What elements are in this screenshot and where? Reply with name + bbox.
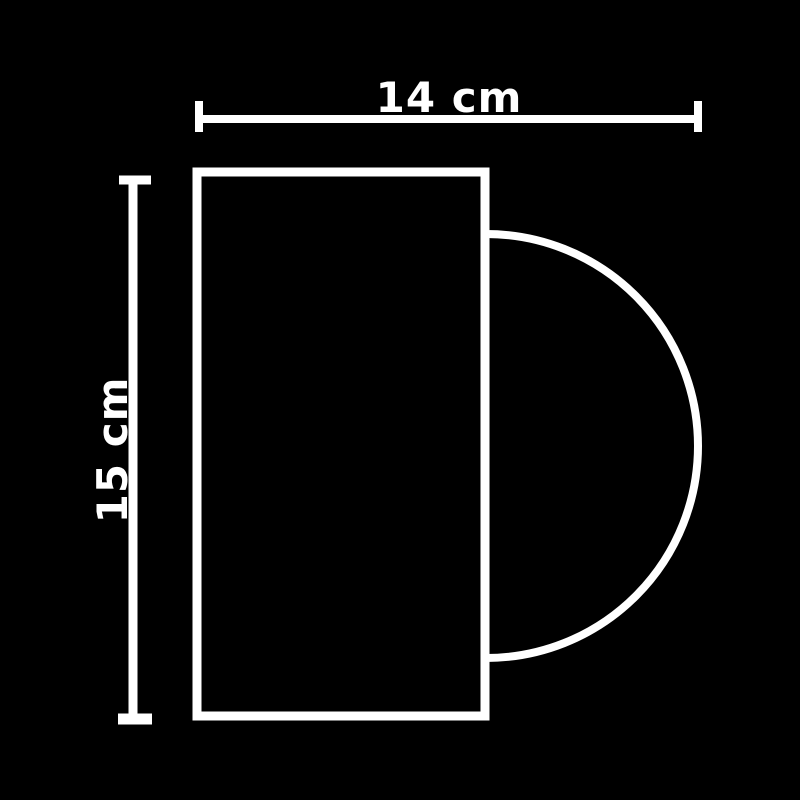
diagram-canvas: 14 cm 15 cm [0,0,800,800]
height-dimension-line: 15 cm [88,180,152,721]
rectangle-shape [197,172,485,716]
height-dimension-label: 15 cm [88,377,137,524]
semicircle-arc [486,234,698,658]
width-dimension-line: 14 cm [197,73,700,132]
geometry-figure: 14 cm 15 cm [0,0,800,800]
width-dimension-label: 14 cm [376,73,523,122]
